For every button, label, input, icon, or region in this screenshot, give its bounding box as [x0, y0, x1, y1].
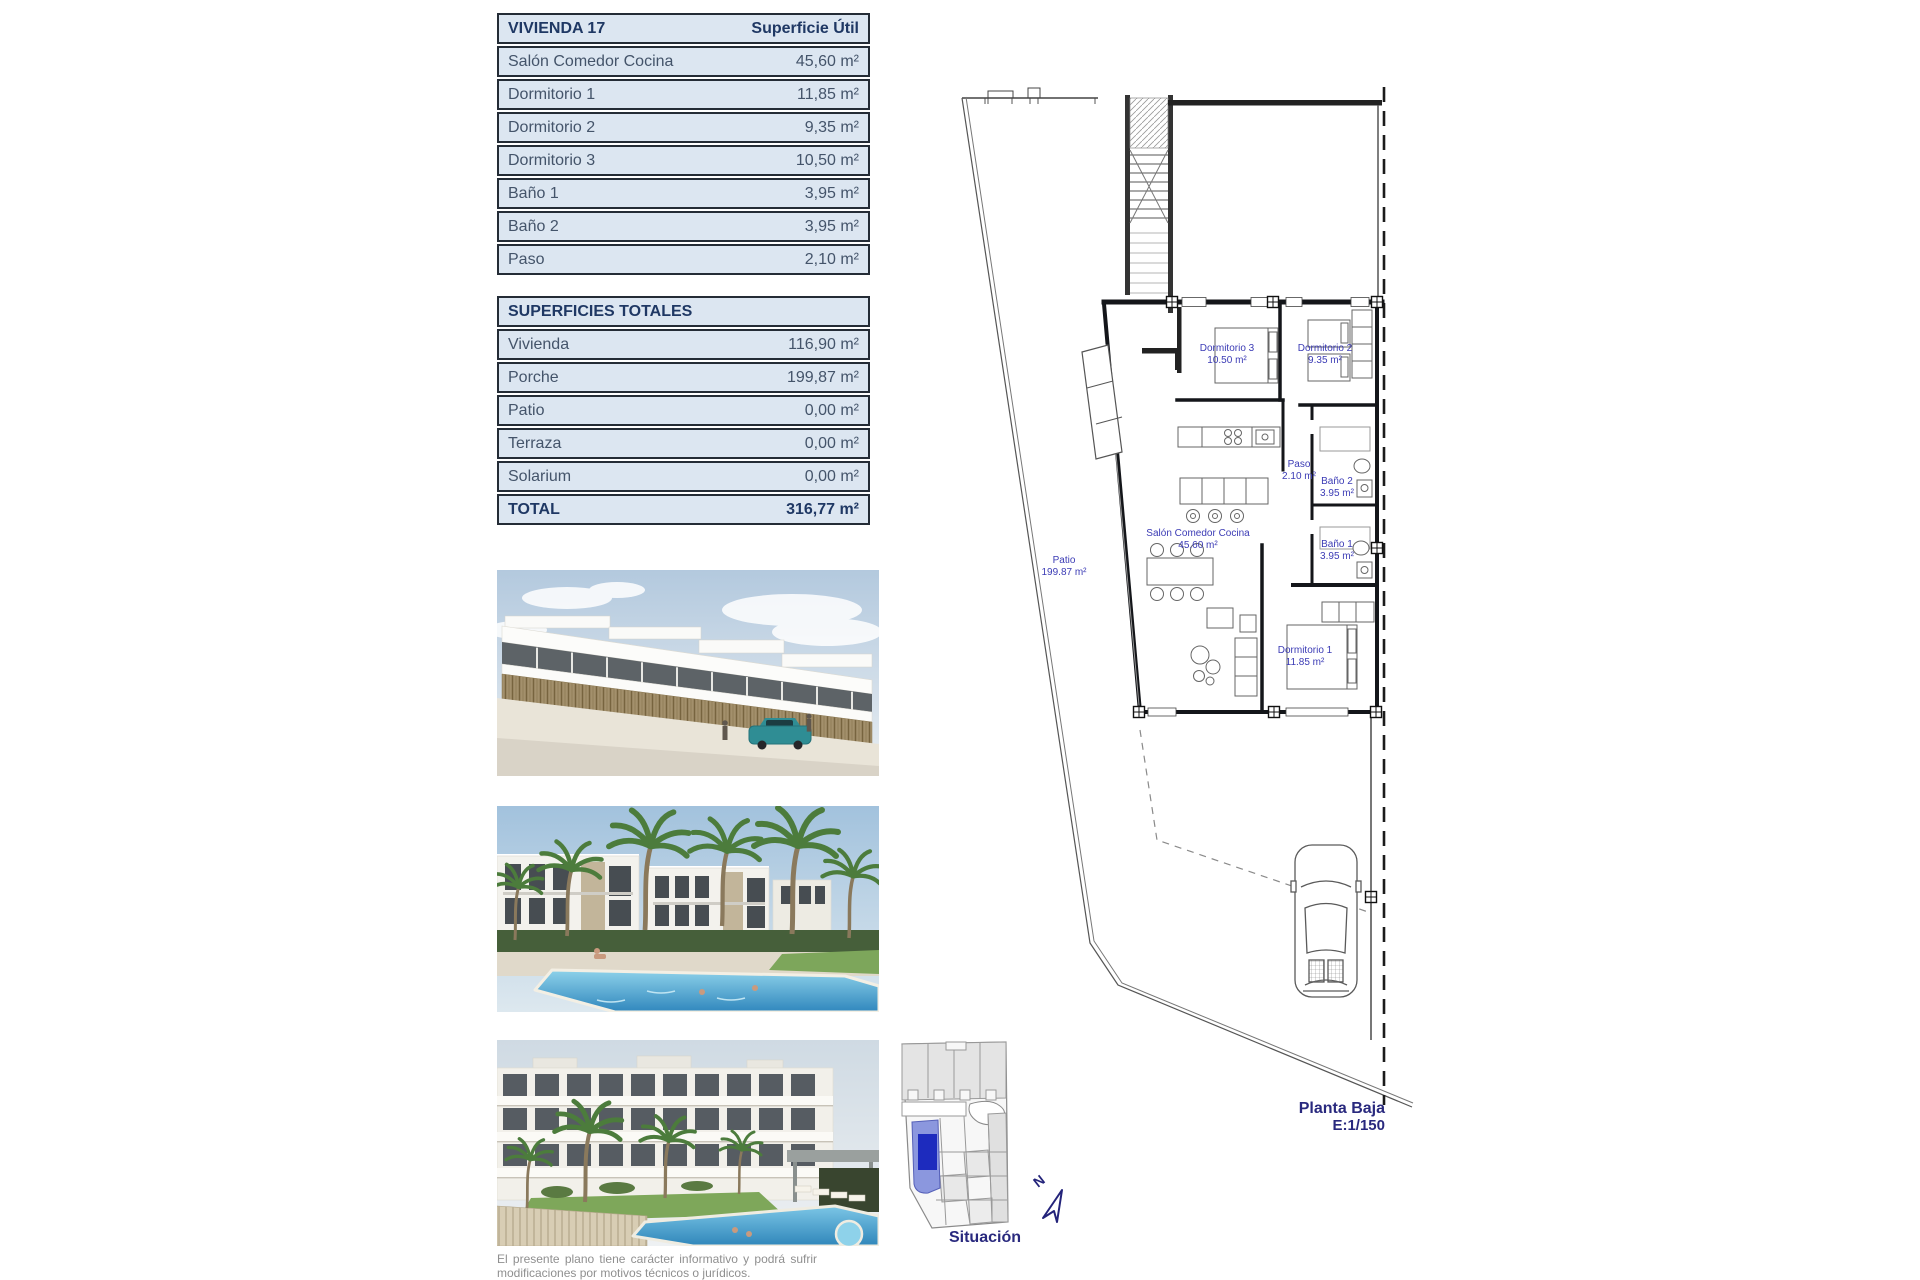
- room-label-paso: Paso 2.10 m²: [1282, 459, 1316, 483]
- totals-table: SUPERFICIES TOTALES Vivienda116,90 m² Po…: [497, 296, 870, 527]
- row-value: 10,50 m²: [796, 152, 859, 170]
- row-label: Dormitorio 2: [508, 119, 595, 137]
- row-value: 199,87 m²: [787, 369, 859, 387]
- room-label-bano1: Baño 1 3.95 m²: [1320, 539, 1354, 563]
- car-top-view: [1291, 845, 1361, 997]
- highlight-unit: [918, 1134, 937, 1170]
- disclaimer-text: El presente plano tiene carácter informa…: [497, 1252, 817, 1280]
- spa-pool: [836, 1221, 862, 1246]
- room-name: Baño 2: [1320, 476, 1354, 488]
- table-row: Dormitorio 310,50 m²: [497, 145, 870, 176]
- plan-caption: Planta Baja E:1/150: [1225, 1100, 1385, 1134]
- row-label: Salón Comedor Cocina: [508, 53, 673, 71]
- north-letter: N: [1030, 1172, 1048, 1191]
- row-value: 0,00 m²: [805, 435, 859, 453]
- row-value: 9,35 m²: [805, 119, 859, 137]
- row-value: 0,00 m²: [805, 402, 859, 420]
- totals-table-header: SUPERFICIES TOTALES: [497, 296, 870, 327]
- room-label-dormitorio3: Dormitorio 3 10.50 m²: [1200, 343, 1254, 367]
- total-row: TOTAL316,77 m²: [497, 494, 870, 525]
- row-label: Paso: [508, 251, 544, 269]
- row-value: 0,00 m²: [805, 468, 859, 486]
- room-area: 10.50 m²: [1200, 355, 1254, 367]
- table-row: Salón Comedor Cocina45,60 m²: [497, 46, 870, 77]
- table-row: Patio0,00 m²: [497, 395, 870, 426]
- row-value: 3,95 m²: [805, 185, 859, 203]
- row-value: 11,85 m²: [797, 86, 859, 104]
- row-label: Vivienda: [508, 336, 569, 354]
- row-value: 45,60 m²: [796, 53, 859, 71]
- table-row: Porche199,87 m²: [497, 362, 870, 393]
- unit-table-column-header: Superficie Útil: [751, 20, 859, 38]
- photo-pool-courtyard: [497, 806, 879, 1012]
- room-label-patio: Patio 199.87 m²: [1041, 555, 1086, 579]
- room-name: Paso: [1282, 459, 1316, 471]
- table-row: Vivienda116,90 m²: [497, 329, 870, 360]
- room-label-salon: Salón Comedor Cocina 45.60 m²: [1146, 528, 1249, 552]
- plan-caption-scale: E:1/150: [1225, 1118, 1385, 1134]
- row-label: Baño 2: [508, 218, 559, 236]
- table-row: Paso2,10 m²: [497, 244, 870, 275]
- room-area: 11.85 m²: [1278, 657, 1332, 669]
- room-area: 2.10 m²: [1282, 471, 1316, 483]
- row-label: Dormitorio 1: [508, 86, 595, 104]
- table-row: Dormitorio 29,35 m²: [497, 112, 870, 143]
- unit-table-title: VIVIENDA 17: [508, 20, 605, 38]
- table-row: Baño 13,95 m²: [497, 178, 870, 209]
- row-value: 116,90 m²: [788, 336, 859, 354]
- table-row: Terraza0,00 m²: [497, 428, 870, 459]
- row-label: TOTAL: [508, 501, 560, 519]
- row-value: 2,10 m²: [805, 251, 859, 269]
- plan-sheet: VIVIENDA 17 Superficie Útil Salón Comedo…: [0, 0, 1920, 1280]
- table-row: Dormitorio 111,85 m²: [497, 79, 870, 110]
- site-location-map: N: [888, 1040, 1078, 1250]
- furniture: [1082, 310, 1374, 696]
- room-label-dormitorio1: Dormitorio 1 11.85 m²: [1278, 645, 1332, 669]
- map-houses-row: [902, 1042, 1006, 1100]
- row-label: Porche: [508, 369, 559, 387]
- room-area: 45.60 m²: [1146, 540, 1249, 552]
- room-area: 9.35 m²: [1298, 355, 1352, 367]
- neighbour-block: [1168, 100, 1382, 297]
- hedge: [497, 930, 879, 954]
- room-name: Patio: [1041, 555, 1086, 567]
- table-row: Solarium0,00 m²: [497, 461, 870, 492]
- unit-areas-table: VIVIENDA 17 Superficie Útil Salón Comedo…: [497, 13, 870, 277]
- north-arrow-icon: N: [1030, 1172, 1062, 1222]
- photo-apartments-pool: [497, 1040, 879, 1246]
- room-name: Dormitorio 3: [1200, 343, 1254, 355]
- staircase: [1125, 95, 1173, 313]
- row-label: Solarium: [508, 468, 571, 486]
- photo-street-townhouses: [497, 570, 879, 776]
- row-value: 316,77 m²: [786, 501, 859, 519]
- plan-caption-title: Planta Baja: [1225, 1100, 1385, 1118]
- row-value: 3,95 m²: [805, 218, 859, 236]
- totals-table-title: SUPERFICIES TOTALES: [508, 303, 692, 321]
- row-label: Baño 1: [508, 185, 559, 203]
- row-label: Patio: [508, 402, 544, 420]
- room-label-dormitorio2: Dormitorio 2 9.35 m²: [1298, 343, 1352, 367]
- table-row: Baño 23,95 m²: [497, 211, 870, 242]
- row-label: Dormitorio 3: [508, 152, 595, 170]
- site-map-label: Situación: [905, 1229, 1065, 1247]
- row-label: Terraza: [508, 435, 561, 453]
- room-name: Baño 1: [1320, 539, 1354, 551]
- structural-columns: [1134, 297, 1383, 903]
- map-road: [902, 1102, 966, 1116]
- room-label-bano2: Baño 2 3.95 m²: [1320, 476, 1354, 500]
- floor-plan-drawing: [950, 75, 1442, 1135]
- room-area: 3.95 m²: [1320, 551, 1354, 563]
- unit-table-header: VIVIENDA 17 Superficie Útil: [497, 13, 870, 44]
- room-name: Dormitorio 2: [1298, 343, 1352, 355]
- room-area: 3.95 m²: [1320, 488, 1354, 500]
- room-name: Dormitorio 1: [1278, 645, 1332, 657]
- room-area: 199.87 m²: [1041, 567, 1086, 579]
- room-name: Salón Comedor Cocina: [1146, 528, 1249, 540]
- swimming-pool: [535, 970, 879, 1012]
